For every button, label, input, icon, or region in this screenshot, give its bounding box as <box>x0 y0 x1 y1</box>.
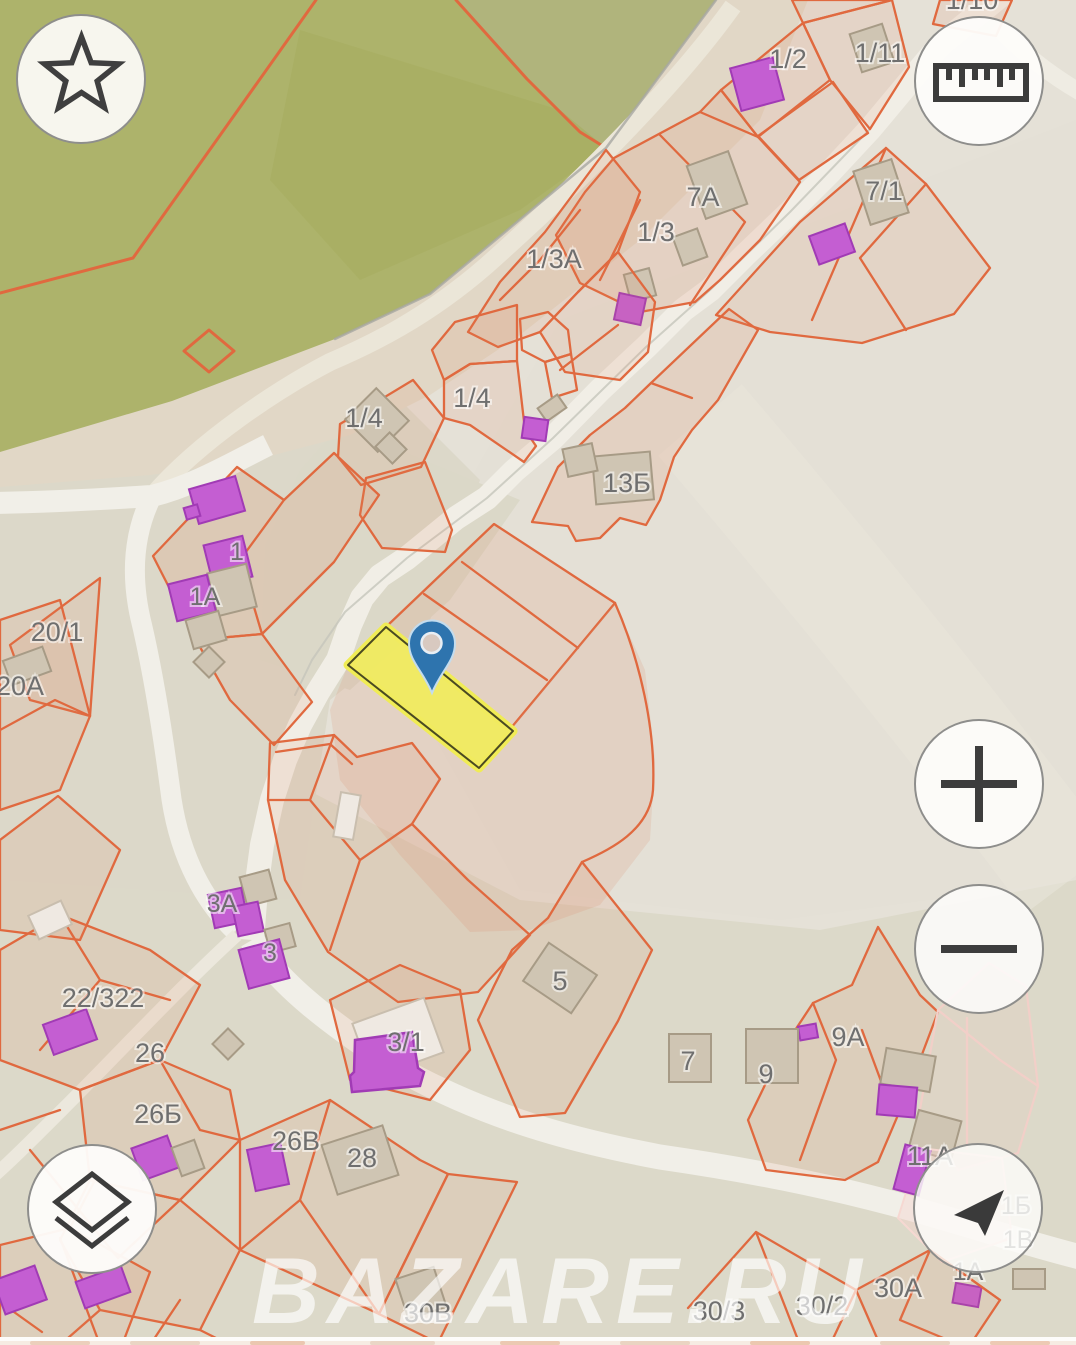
svg-text:1/3A: 1/3A <box>526 244 582 274</box>
svg-text:26: 26 <box>135 1038 165 1068</box>
svg-text:13Б: 13Б <box>603 468 651 498</box>
svg-text:22/322: 22/322 <box>62 983 145 1013</box>
svg-text:1А: 1А <box>190 583 221 611</box>
svg-text:26Б: 26Б <box>134 1099 182 1129</box>
svg-text:3А: 3А <box>207 890 238 918</box>
svg-text:30А: 30А <box>874 1273 922 1303</box>
svg-text:26В: 26В <box>272 1126 320 1156</box>
svg-text:20A: 20A <box>0 671 44 701</box>
svg-text:20/1: 20/1 <box>31 617 84 647</box>
svg-text:3/1: 3/1 <box>387 1027 425 1057</box>
svg-text:7: 7 <box>680 1046 695 1076</box>
svg-text:28: 28 <box>347 1143 377 1173</box>
svg-text:1/11: 1/11 <box>855 38 906 68</box>
svg-text:1/4: 1/4 <box>453 383 491 413</box>
svg-text:1/2: 1/2 <box>769 44 807 74</box>
svg-text:1/3: 1/3 <box>637 217 675 247</box>
svg-text:9: 9 <box>758 1059 773 1089</box>
svg-text:7A: 7A <box>686 182 719 212</box>
svg-text:3: 3 <box>263 939 277 967</box>
svg-text:7/1: 7/1 <box>865 176 903 206</box>
svg-text:1/10: 1/10 <box>946 0 999 15</box>
svg-text:5: 5 <box>552 966 567 996</box>
svg-text:1: 1 <box>230 538 244 566</box>
svg-text:1/4: 1/4 <box>345 403 383 433</box>
svg-text:9A: 9A <box>831 1022 864 1052</box>
